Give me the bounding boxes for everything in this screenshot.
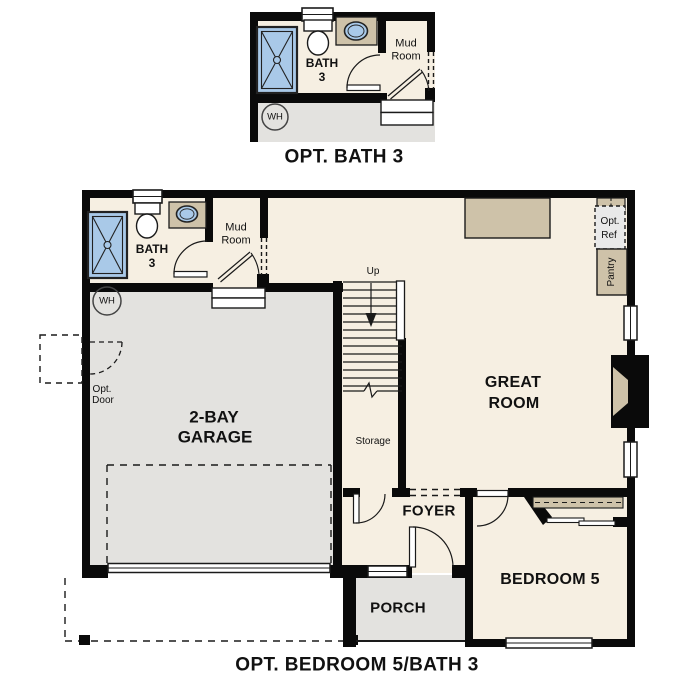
vanity-sink (169, 202, 206, 228)
great-room-label-line1: GREAT (485, 375, 541, 391)
pantry-label: Pantry (607, 258, 617, 287)
driveway-post-left (79, 635, 90, 645)
garage-steps (212, 288, 265, 308)
top-vanity-sink (336, 17, 377, 45)
stairs-up-label: Up (367, 267, 380, 277)
opt-door-label-line1: Opt. (93, 385, 112, 395)
kitchen-island (465, 198, 550, 238)
foyer-label: FOYER (402, 504, 455, 519)
mudroom-label-line1: Mud (225, 223, 246, 234)
bedroom5-window (506, 638, 592, 648)
top-mudroom-label-line2: Room (391, 52, 420, 63)
water-heater-label: WH (99, 296, 115, 306)
top-plan-title: OPT. BATH 3 (284, 148, 403, 167)
top-bath-label-line1: BATH (306, 57, 338, 69)
top-shower (257, 27, 297, 93)
main-plan-title: OPT. BEDROOM 5/BATH 3 (235, 656, 478, 675)
top-mudroom-label-line1: Mud (395, 39, 416, 50)
top-bath-label-line2: 3 (319, 71, 326, 83)
mudroom-label-line2: Room (221, 236, 250, 247)
opt-ref-label-line2: Ref (601, 231, 617, 241)
bedroom5-label: BEDROOM 5 (500, 572, 600, 588)
top-water-heater-label: WH (267, 112, 283, 122)
driveway-outline (65, 578, 352, 641)
floorplan-page: BATH 3 Mud Room WH OPT. BATH 3 BATH 3 Mu… (0, 0, 687, 687)
fireplace (611, 355, 649, 428)
great-room-label-line2: ROOM (489, 396, 540, 412)
porch-label: PORCH (370, 601, 426, 616)
garage-label-line2: GARAGE (178, 429, 253, 446)
top-garage-steps (381, 100, 433, 125)
bath-window (133, 190, 162, 203)
bath-label-line1: BATH (136, 243, 168, 255)
opt-ref-label-line1: Opt. (601, 217, 620, 227)
opt-door-label-line2: Door (92, 396, 114, 406)
foyer-window (368, 566, 407, 577)
bath-label-line2: 3 (149, 257, 156, 269)
garage-label-line1: 2-BAY (189, 409, 238, 426)
shower (88, 212, 127, 278)
top-bath-window (302, 8, 333, 21)
opt-ref-box (595, 206, 625, 249)
storage-label: Storage (355, 437, 390, 447)
toilet (135, 203, 160, 238)
garage-door (108, 564, 330, 573)
